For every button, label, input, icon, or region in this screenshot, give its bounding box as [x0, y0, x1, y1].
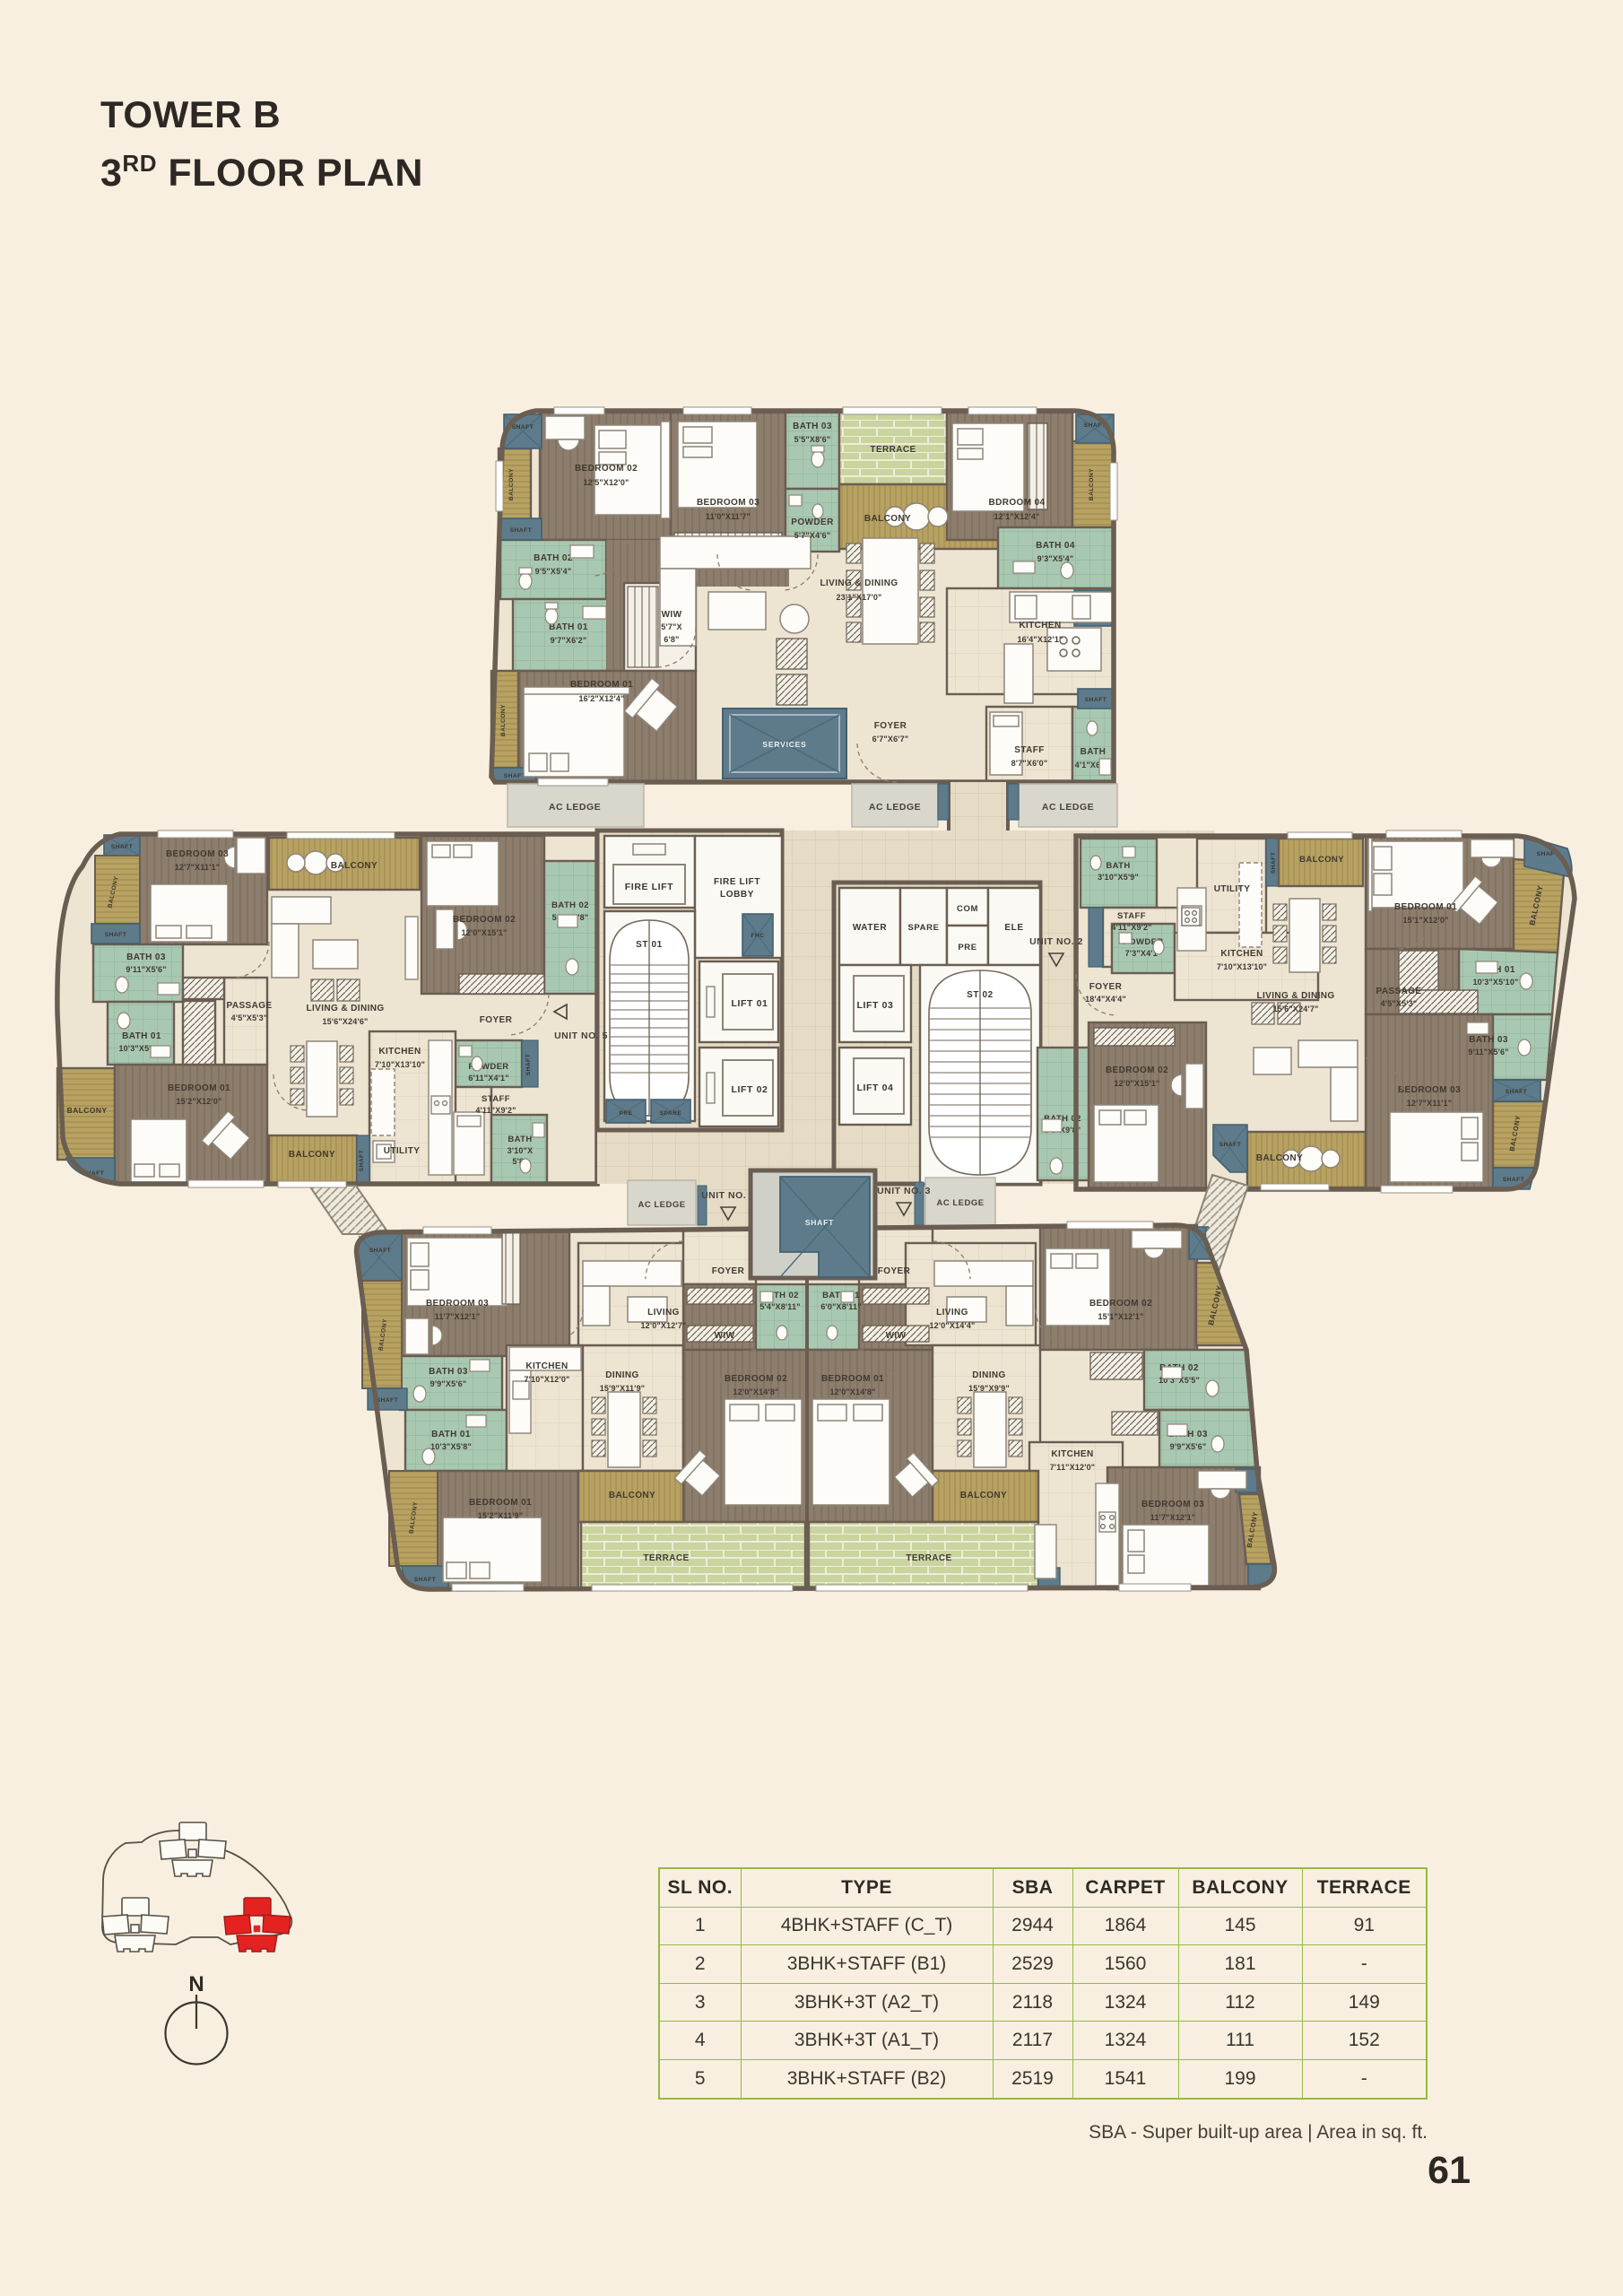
svg-text:9'7"X6'2": 9'7"X6'2"	[551, 636, 587, 645]
svg-text:BALCONY: BALCONY	[1256, 1153, 1303, 1163]
svg-text:11'0"X11'7": 11'0"X11'7"	[706, 512, 751, 521]
svg-text:11'7"X12'1": 11'7"X12'1"	[1150, 1513, 1196, 1522]
svg-text:COM: COM	[957, 904, 978, 914]
svg-text:UNIT NO. 5: UNIT NO. 5	[554, 1031, 608, 1041]
svg-text:UNIT NO. 2: UNIT NO. 2	[1029, 936, 1083, 947]
svg-text:4'5"X5'3": 4'5"X5'3"	[231, 1013, 268, 1022]
svg-text:9'3"X5'4": 9'3"X5'4"	[1037, 554, 1074, 563]
svg-text:12'0"X14'4": 12'0"X14'4"	[929, 1321, 975, 1330]
svg-text:STAFF: STAFF	[1014, 745, 1044, 755]
svg-text:18'4"X4'4": 18'4"X4'4"	[1085, 995, 1126, 1004]
svg-text:AC LEDGE: AC LEDGE	[638, 1200, 685, 1210]
svg-text:15'1"X12'0": 15'1"X12'0"	[1402, 916, 1448, 925]
svg-text:BATH: BATH	[1081, 747, 1107, 757]
svg-text:BEDROOM 01: BEDROOM 01	[1394, 902, 1457, 912]
svg-text:9'11"X5'6": 9'11"X5'6"	[126, 965, 166, 974]
svg-text:15'2"X11'9": 15'2"X11'9"	[478, 1511, 524, 1520]
svg-text:BEDROOM 02: BEDROOM 02	[575, 464, 638, 474]
svg-text:3'10"X: 3'10"X	[508, 1146, 534, 1155]
svg-text:SHAFT: SHAFT	[111, 844, 133, 850]
svg-text:SHAFT: SHAFT	[369, 1248, 391, 1254]
svg-text:12'0"X15'1": 12'0"X15'1"	[461, 928, 507, 937]
svg-text:BATH: BATH	[508, 1135, 532, 1144]
svg-text:BALCONY: BALCONY	[67, 1106, 108, 1115]
svg-text:LIVING: LIVING	[647, 1308, 680, 1318]
svg-text:BATH 03: BATH 03	[126, 952, 166, 962]
svg-text:N: N	[188, 1972, 204, 1996]
svg-text:TERRACE: TERRACE	[906, 1553, 951, 1563]
svg-text:7'10"X12'0": 7'10"X12'0"	[524, 1375, 569, 1384]
svg-text:8'7"X6'0": 8'7"X6'0"	[1011, 759, 1048, 768]
svg-text:BEDROOM 03: BEDROOM 03	[697, 498, 759, 508]
svg-text:10'3"X5'10": 10'3"X5'10"	[1472, 978, 1518, 987]
svg-text:LIVING & DINING: LIVING & DINING	[820, 578, 898, 588]
svg-text:23'1"X17'0": 23'1"X17'0"	[836, 593, 881, 602]
svg-text:5'7"X: 5'7"X	[661, 622, 681, 631]
svg-text:UTILITY: UTILITY	[384, 1146, 421, 1156]
svg-text:BEDROOM 02: BEDROOM 02	[1106, 1065, 1168, 1075]
svg-text:PASSAGE: PASSAGE	[1376, 987, 1422, 996]
svg-text:BATH 02: BATH 02	[534, 553, 573, 563]
svg-text:BEDROOM 03: BEDROOM 03	[426, 1299, 489, 1309]
svg-text:PASSAGE: PASSAGE	[227, 1001, 273, 1011]
svg-text:LIFT 03: LIFT 03	[857, 1000, 894, 1011]
svg-text:KITCHEN: KITCHEN	[378, 1047, 421, 1057]
svg-text:BEDROOM 01: BEDROOM 01	[570, 680, 633, 690]
svg-text:3'10"X5'9": 3'10"X5'9"	[1098, 873, 1139, 882]
svg-text:6'7"X6'7": 6'7"X6'7"	[872, 735, 909, 744]
svg-text:BEDROOM 01: BEDROOM 01	[168, 1083, 230, 1093]
svg-text:SHAFT: SHAFT	[1085, 697, 1107, 703]
svg-text:SHAFT: SHAFT	[377, 1397, 398, 1404]
svg-text:12'5"X12'0": 12'5"X12'0"	[583, 478, 629, 487]
svg-text:9'9"X5'6": 9'9"X5'6"	[430, 1379, 467, 1388]
svg-text:BALCONY: BALCONY	[500, 704, 507, 736]
svg-text:LIVING: LIVING	[936, 1308, 968, 1318]
svg-text:ST 01: ST 01	[636, 940, 663, 950]
svg-text:LIVING & DINING: LIVING & DINING	[1256, 991, 1334, 1001]
svg-text:BATH: BATH	[1106, 861, 1130, 871]
svg-text:SPARE: SPARE	[907, 923, 939, 933]
svg-text:FOYER: FOYER	[878, 1266, 911, 1276]
svg-text:BALCONY: BALCONY	[609, 1491, 655, 1500]
svg-text:BATH 03: BATH 03	[1469, 1035, 1508, 1045]
svg-text:9'9"X5'6": 9'9"X5'6"	[1170, 1442, 1207, 1451]
svg-text:SHAFT: SHAFT	[1271, 852, 1277, 874]
svg-text:BALCONY: BALCONY	[864, 514, 911, 524]
svg-text:BATH 04: BATH 04	[1036, 541, 1075, 551]
svg-text:DINING: DINING	[972, 1370, 1005, 1380]
svg-text:9'5"X5'4": 9'5"X5'4"	[535, 567, 572, 576]
svg-text:12'0"X12'7": 12'0"X12'7"	[640, 1321, 686, 1330]
svg-text:4'11"X9'2": 4'11"X9'2"	[1111, 923, 1151, 932]
svg-text:FOYER: FOYER	[712, 1266, 745, 1276]
svg-text:BATH 01: BATH 01	[122, 1031, 161, 1041]
svg-text:WIW: WIW	[662, 610, 682, 620]
svg-text:BALCONY: BALCONY	[331, 861, 378, 871]
svg-text:FIRE LIFT: FIRE LIFT	[714, 877, 760, 887]
svg-text:BDROOM 04: BDROOM 04	[988, 498, 1045, 508]
svg-text:6'11"X4'1": 6'11"X4'1"	[468, 1074, 508, 1083]
svg-text:LIFT 02: LIFT 02	[732, 1084, 768, 1095]
svg-text:4'11"X9'2": 4'11"X9'2"	[475, 1106, 516, 1115]
svg-text:SHAFT: SHAFT	[1219, 1142, 1241, 1148]
svg-text:SHAFT: SHAFT	[1506, 1089, 1527, 1095]
svg-text:TERRACE: TERRACE	[870, 445, 916, 455]
svg-text:BEDROOM 03: BEDROOM 03	[1141, 1500, 1204, 1509]
svg-text:BATH 02: BATH 02	[551, 900, 589, 910]
svg-text:WIW: WIW	[886, 1331, 907, 1341]
svg-text:12'1"X12'4": 12'1"X12'4"	[994, 512, 1039, 521]
svg-text:LIFT 01: LIFT 01	[732, 998, 768, 1009]
svg-text:BALCONY: BALCONY	[289, 1150, 335, 1160]
svg-text:BATH 03: BATH 03	[429, 1367, 468, 1377]
svg-text:6'8": 6'8"	[664, 635, 679, 644]
svg-text:FOYER: FOYER	[480, 1015, 513, 1025]
svg-text:15'1"X12'1": 15'1"X12'1"	[1098, 1312, 1143, 1321]
svg-text:SHAFT: SHAFT	[512, 424, 534, 430]
svg-text:AC LEDGE: AC LEDGE	[936, 1198, 984, 1208]
svg-text:FHC: FHC	[751, 933, 764, 939]
svg-text:7'10"X13'10": 7'10"X13'10"	[375, 1060, 425, 1069]
svg-text:AC LEDGE: AC LEDGE	[549, 802, 601, 813]
svg-text:16'2"X12'4": 16'2"X12'4"	[578, 694, 624, 703]
svg-text:PRE: PRE	[619, 1110, 632, 1117]
svg-text:11'7"X12'1": 11'7"X12'1"	[435, 1312, 481, 1321]
svg-text:BEDROOM 03: BEDROOM 03	[166, 849, 229, 859]
svg-text:16'4"X12'1": 16'4"X12'1"	[1017, 635, 1063, 644]
svg-text:DINING: DINING	[605, 1370, 638, 1380]
svg-text:WIW: WIW	[715, 1331, 735, 1341]
svg-text:ELE: ELE	[1004, 923, 1023, 933]
svg-text:BALCONY: BALCONY	[1089, 468, 1095, 500]
svg-text:STAFF: STAFF	[1117, 911, 1146, 921]
svg-text:SHAFT: SHAFT	[504, 773, 525, 779]
svg-text:BEDROOM 02: BEDROOM 02	[453, 915, 516, 925]
svg-text:15'9"X11'9": 15'9"X11'9"	[600, 1384, 646, 1393]
svg-text:POWDER: POWDER	[791, 517, 834, 527]
svg-text:LIVING & DINING: LIVING & DINING	[306, 1004, 384, 1013]
svg-text:BEDROOM 01: BEDROOM 01	[469, 1498, 532, 1508]
svg-text:SERVICES: SERVICES	[762, 740, 806, 749]
svg-text:FOYER: FOYER	[874, 721, 907, 731]
svg-text:BATH 01: BATH 01	[431, 1430, 471, 1439]
svg-text:6'0"X8'11": 6'0"X8'11"	[820, 1302, 861, 1311]
svg-text:7'10"X13'10": 7'10"X13'10"	[1217, 962, 1267, 971]
svg-text:SHAFT: SHAFT	[359, 1150, 365, 1171]
svg-text:FIRE LIFT: FIRE LIFT	[625, 882, 673, 892]
svg-text:FOYER: FOYER	[1089, 982, 1123, 992]
svg-text:12'0"X14'8": 12'0"X14'8"	[829, 1387, 875, 1396]
svg-text:SHAFT: SHAFT	[510, 527, 532, 534]
svg-text:5'7"X4'6": 5'7"X4'6"	[794, 531, 831, 540]
svg-text:SHAFT: SHAFT	[1503, 1177, 1524, 1183]
svg-text:15'6"X24'6": 15'6"X24'6"	[322, 1017, 368, 1026]
svg-text:12'0"X14'8": 12'0"X14'8"	[733, 1387, 778, 1396]
svg-text:BATH 01: BATH 01	[549, 622, 588, 632]
svg-text:UNIT NO. 3: UNIT NO. 3	[877, 1186, 931, 1196]
svg-text:BEDROOM 01: BEDROOM 01	[821, 1374, 884, 1384]
svg-text:SHAFT: SHAFT	[414, 1577, 436, 1583]
svg-text:4'5"X5'3": 4'5"X5'3"	[1381, 999, 1418, 1008]
svg-text:9'11"X5'6": 9'11"X5'6"	[1468, 1048, 1508, 1057]
svg-text:BALCONY: BALCONY	[1299, 855, 1344, 865]
svg-text:KITCHEN: KITCHEN	[525, 1361, 568, 1371]
svg-text:ST 02: ST 02	[967, 990, 994, 1000]
svg-text:STAFF: STAFF	[482, 1094, 510, 1104]
svg-text:LIFT 04: LIFT 04	[857, 1083, 894, 1093]
svg-text:15'9"X9'9": 15'9"X9'9"	[968, 1384, 1010, 1393]
svg-text:15'6"X24'7": 15'6"X24'7"	[1272, 1004, 1318, 1013]
svg-text:12'7"X11'1": 12'7"X11'1"	[175, 863, 221, 872]
svg-text:BATH 03: BATH 03	[793, 422, 832, 431]
svg-text:5'5"X8'6": 5'5"X8'6"	[794, 435, 831, 444]
svg-text:10'3"X5'8": 10'3"X5'8"	[430, 1442, 472, 1451]
svg-text:KITCHEN: KITCHEN	[1051, 1449, 1093, 1459]
svg-text:12'0"X15'1": 12'0"X15'1"	[1114, 1079, 1159, 1088]
svg-text:SPARE: SPARE	[660, 1110, 682, 1117]
svg-text:UNIT NO. 4: UNIT NO. 4	[701, 1190, 755, 1201]
svg-text:SHAFT: SHAFT	[105, 932, 126, 938]
svg-text:KITCHEN: KITCHEN	[1019, 621, 1061, 631]
svg-text:WATER: WATER	[853, 923, 888, 933]
svg-text:BEDROOM 02: BEDROOM 02	[725, 1374, 787, 1384]
svg-text:SHAFT: SHAFT	[805, 1218, 834, 1227]
svg-text:PRE: PRE	[958, 943, 976, 952]
svg-text:UTILITY: UTILITY	[1214, 884, 1251, 894]
svg-text:SHAFT: SHAFT	[525, 1054, 532, 1075]
svg-text:5'4"X8'11": 5'4"X8'11"	[759, 1302, 800, 1311]
svg-text:AC LEDGE: AC LEDGE	[869, 802, 921, 813]
svg-text:AC LEDGE: AC LEDGE	[1042, 802, 1094, 813]
svg-text:BEDROOM 02: BEDROOM 02	[1089, 1299, 1152, 1309]
svg-text:KITCHEN: KITCHEN	[1220, 949, 1263, 959]
svg-text:7'11"X12'0": 7'11"X12'0"	[1050, 1463, 1096, 1472]
svg-text:BALCONY: BALCONY	[508, 468, 515, 500]
svg-text:LOBBY: LOBBY	[720, 890, 754, 900]
svg-text:BEDROOM 03: BEDROOM 03	[1398, 1085, 1461, 1095]
svg-text:12'7"X11'1": 12'7"X11'1"	[1407, 1099, 1453, 1108]
svg-text:15'2"X12'0": 15'2"X12'0"	[176, 1097, 221, 1106]
svg-text:BALCONY: BALCONY	[960, 1491, 1007, 1500]
svg-text:TERRACE: TERRACE	[643, 1553, 689, 1563]
